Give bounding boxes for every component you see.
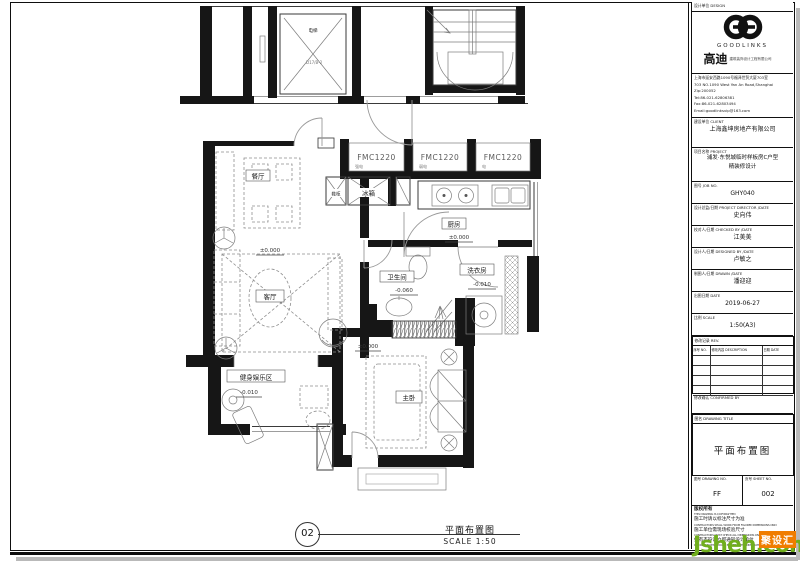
designer-row: 设计人/日期 DESIGNED BY /DATE 卢敏之 bbox=[692, 248, 793, 270]
gym-elevation: -0.010 bbox=[240, 390, 258, 396]
logo-wordmark: GOODLINKS bbox=[694, 43, 791, 49]
sheet-border-bottom bbox=[10, 552, 796, 555]
brand-chinese: 高迪 bbox=[703, 50, 727, 67]
address-line: 703 NO.1090 West Yan An Road,Shanghai bbox=[694, 82, 791, 89]
page-shadow-right bbox=[796, 8, 800, 560]
callout-number: 02 bbox=[295, 522, 320, 547]
client-name: 上海鑫坤房地产有限公司 bbox=[694, 124, 791, 135]
company-address: 上海市延安西路1090号福泽世贸大厦703室 703 NO.1090 West … bbox=[692, 74, 793, 118]
walls bbox=[180, 6, 541, 468]
closet-label-1: FMC1220 bbox=[357, 153, 396, 162]
job-no-value: GHY040 bbox=[694, 188, 791, 199]
living-furniture: 客厅 bbox=[213, 227, 347, 359]
fridge-label: 冰箱 bbox=[362, 189, 376, 198]
staircase bbox=[427, 10, 516, 90]
closet-row: FMC1220 FMC1220 FMC1220 强电 弱电 电 bbox=[349, 143, 530, 171]
rev-empty-row bbox=[693, 356, 793, 366]
drawing-number-row: 图号 DRAWING NO. FF 页号 SHEET NO. 002 bbox=[692, 476, 793, 506]
room-label-master: 主卧 bbox=[403, 393, 417, 402]
dining-elevation: ±0.000 bbox=[260, 248, 281, 254]
address-line: Email:goodlinksvip@163.com bbox=[694, 108, 791, 115]
director-row: 设计总监/日期 PROJECT DIRECTOR /DATE 史向伟 bbox=[692, 204, 793, 226]
bathroom-fixtures: 卫生间 -0.060 bbox=[364, 240, 452, 332]
project-name-line2: 精装修设计 bbox=[694, 163, 791, 172]
rev-empty-row bbox=[693, 366, 793, 376]
room-label-dining: 餐厅 bbox=[252, 172, 266, 181]
sheet-no-value: 002 bbox=[743, 483, 793, 505]
drawing-callout-scale: SCALE 1:50 bbox=[420, 537, 520, 546]
address-line: Zip:200052 bbox=[694, 88, 791, 95]
drafter-row: 制图人/日期 DRAWN /DATE 潘迎迎 bbox=[692, 270, 793, 292]
bedroom-elevation: ±0.000 bbox=[358, 344, 379, 350]
sheet-no-header: 页号 SHEET NO. bbox=[743, 476, 793, 483]
revision-header: 修改记录 REV. bbox=[693, 337, 793, 346]
checker-value: 江美美 bbox=[694, 232, 791, 243]
drawing-title-section: 图名 DRAWING TITLE 平面布置图 bbox=[692, 414, 794, 476]
rev-empty-row bbox=[693, 376, 793, 386]
room-label-kitchen: 厨房 bbox=[448, 220, 461, 229]
drawing-no-header: 图号 DRAWING NO. bbox=[692, 476, 742, 483]
project-section: 项目名称 PROJECT 浦发·东悦城临时样板房C户型 精装修设计 bbox=[692, 148, 793, 182]
shoe-cabinet-label: 鞋柜 bbox=[332, 191, 341, 198]
closet-label-3: FMC1220 bbox=[484, 153, 523, 162]
drawing-no-cell: 图号 DRAWING NO. FF bbox=[692, 476, 743, 505]
company-logo-box: GOODLINKS 高迪 建筑装饰设计工程有限公司 bbox=[692, 12, 793, 74]
drawing-title-header: 图名 DRAWING TITLE bbox=[693, 415, 793, 424]
revision-table: 修改记录 REV. 序号 NO. 修改内容 DESCRIPTION 日期 DAT… bbox=[692, 336, 794, 394]
goodlinks-logo-icon bbox=[720, 13, 766, 41]
site-watermark: Jsheh.com 聚设汇 bbox=[693, 531, 800, 561]
sheet-no-cell: 页号 SHEET NO. 002 bbox=[743, 476, 793, 505]
design-unit-header: 设计单位 DESIGN bbox=[692, 2, 793, 12]
client-section: 建设单位 CLIENT 上海鑫坤房地产有限公司 bbox=[692, 118, 793, 148]
drawing-title-value: 平面布置图 bbox=[693, 424, 793, 475]
room-label-living: 客厅 bbox=[264, 292, 278, 301]
title-block: 设计单位 DESIGN GOODLINKS 高迪 建筑装饰设计工程有限公司 上海… bbox=[692, 2, 793, 549]
scale-value: 1:50(A3) bbox=[694, 320, 791, 331]
closet-sub-3: 电 bbox=[482, 163, 486, 169]
closet-sub-2: 弱电 bbox=[419, 163, 427, 169]
room-label-bath: 卫生间 bbox=[387, 273, 407, 282]
designer-value: 卢敏之 bbox=[694, 254, 791, 265]
watermark-badge: 聚设汇 bbox=[759, 531, 796, 548]
elevator-label: 电梯 bbox=[309, 27, 318, 34]
job-no-row: 图号 JOB NO. GHY040 bbox=[692, 182, 793, 204]
laundry-elevation: -0.010 bbox=[473, 282, 491, 288]
closet-sub-1: 强电 bbox=[355, 163, 363, 169]
drawing-no-value: FF bbox=[692, 483, 742, 505]
address-line: 上海市延安西路1090号福泽世贸大厦703室 bbox=[694, 75, 791, 82]
drafter-value: 潘迎迎 bbox=[694, 276, 791, 287]
rev-col-date: 日期 DATE bbox=[763, 346, 792, 355]
address-line: Tel:86-021-62806381 bbox=[694, 95, 791, 102]
address-line: Fax:86-021-62803494 bbox=[694, 101, 791, 108]
rev-col-no: 序号 NO. bbox=[693, 346, 711, 355]
room-label-laundry: 洗衣房 bbox=[467, 266, 487, 275]
closet-label-2: FMC1220 bbox=[421, 153, 460, 162]
page-shadow-bottom bbox=[16, 557, 798, 561]
drawing-callout-title: 平面布置图 bbox=[420, 523, 520, 536]
drawing-sheet: { "callout": { "number": "02", "title": … bbox=[0, 0, 800, 565]
date-row: 出图日期 DATE 2019-06-27 bbox=[692, 292, 793, 314]
brand-subtitle: 建筑装饰设计工程有限公司 bbox=[730, 57, 782, 61]
bath-elevation: -0.060 bbox=[395, 288, 413, 294]
kitchen-elevation: ±0.000 bbox=[449, 235, 470, 241]
room-label-gym: 健身娱乐区 bbox=[240, 373, 273, 382]
date-value: 2019-06-27 bbox=[694, 298, 791, 309]
floor-plan: 电梯 D17/B-2 FMC1220 FMC1220 FMC1220 强电 弱电… bbox=[0, 0, 690, 520]
checker-row: 校对人/日期 CHECKED BY /DATE 江美美 bbox=[692, 226, 793, 248]
rev-col-desc: 修改内容 DESCRIPTION bbox=[711, 346, 763, 355]
project-name-line1: 浦发·东悦城临时样板房C户型 bbox=[694, 154, 791, 163]
elevator-code: D17/B-2 bbox=[306, 60, 323, 65]
director-value: 史向伟 bbox=[694, 210, 791, 221]
confirm-row: 修改确认 CONFIRMED BY bbox=[692, 394, 793, 414]
scale-row: 比例 SCALE 1:50(A3) bbox=[692, 314, 793, 336]
